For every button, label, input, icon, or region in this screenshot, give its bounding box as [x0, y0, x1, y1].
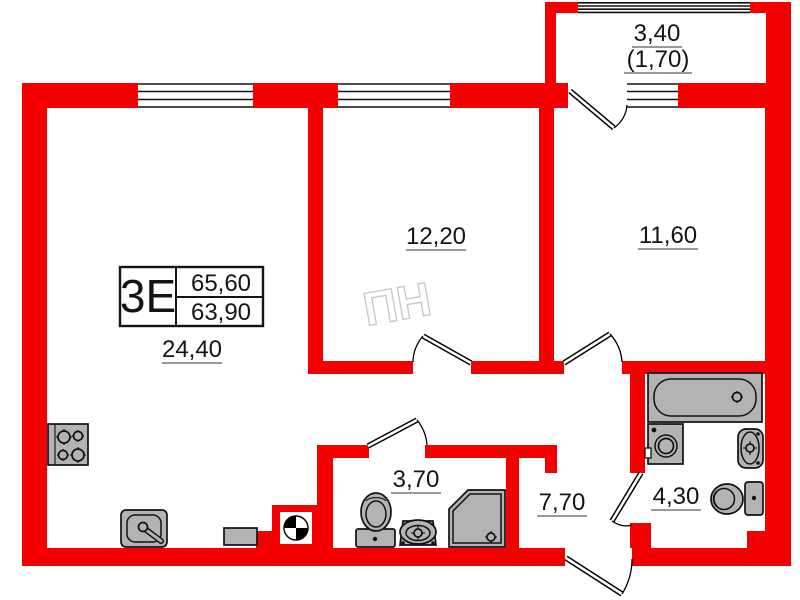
floor-plan: ПН 3Е 65,60 63,90 24,40 12,20 11,60 3,40… — [0, 0, 800, 600]
total-area-value: 65,60 — [191, 270, 251, 297]
apartment-type-label: 3Е — [120, 270, 176, 322]
apartment-stamp: 3Е 65,60 63,90 — [120, 267, 263, 326]
wall-bathroom2-left-upper — [630, 361, 645, 473]
wall-mid-horizontal-1 — [308, 361, 413, 374]
washbasin-1 — [400, 520, 436, 545]
toilet-1 — [356, 493, 395, 547]
vent-shaft-step — [256, 531, 274, 548]
balcony-wall-top-left — [545, 2, 578, 13]
wall-top-2 — [253, 83, 338, 108]
wall-kitchen-bedroom1 — [308, 108, 323, 374]
wall-bottom-right — [632, 548, 791, 566]
window-kitchen — [138, 83, 253, 108]
wall-top-3 — [450, 83, 568, 108]
stove — [48, 424, 88, 465]
door-bathroom2 — [612, 473, 641, 526]
window-bedroom1 — [338, 83, 450, 108]
vent-shaft-symbol — [280, 512, 312, 544]
door-bathroom1 — [368, 420, 427, 446]
shower-cabin — [449, 490, 505, 547]
living-area-value: 63,90 — [191, 299, 251, 326]
label-bedroom2: 11,60 — [639, 222, 697, 249]
floor-plan-canvas: ПН 3Е 65,60 63,90 24,40 12,20 11,60 3,40… — [0, 0, 800, 600]
balcony-wall-right — [766, 2, 791, 83]
wall-hallway-bathroom1 — [506, 445, 519, 548]
wall-left — [22, 83, 47, 566]
watermark-text: ПН — [359, 272, 435, 336]
wall-bedroom1-bedroom2 — [539, 108, 554, 365]
door-bedroom2 — [564, 334, 622, 363]
door-entrance — [566, 558, 632, 594]
label-hallway: 7,70 — [539, 489, 586, 516]
wall-bottom-left — [22, 548, 565, 566]
wall-bathroom1-top-right — [425, 445, 557, 458]
window-balcony-outer — [578, 2, 750, 13]
label-bathroom1: 3,70 — [393, 466, 440, 493]
kitchen-sink — [121, 510, 167, 547]
fixtures — [48, 373, 763, 547]
toilet-2 — [711, 482, 763, 515]
door-bedroom1 — [413, 336, 471, 363]
washing-machine — [645, 424, 683, 464]
label-bathroom2: 4,30 — [653, 483, 700, 510]
label-balcony-full: 3,40 — [634, 20, 681, 47]
door-balcony — [570, 91, 627, 128]
label-bedroom1: 12,20 — [406, 223, 466, 250]
balcony-wall-left — [545, 2, 556, 83]
wall-mid-horizontal-2 — [471, 361, 564, 374]
counter-block — [224, 528, 257, 545]
wall-right — [765, 83, 791, 566]
washbasin-2 — [738, 429, 763, 468]
wall-bathroom2-left-lower — [630, 523, 651, 548]
bathtub — [648, 373, 762, 422]
window-balcony-inner — [627, 83, 678, 108]
label-balcony-reduced: (1,70) — [627, 46, 690, 73]
wall-hallway-stub — [545, 445, 557, 473]
label-living-kitchen: 24,40 — [162, 336, 222, 363]
wall-bottom-step — [747, 531, 765, 548]
